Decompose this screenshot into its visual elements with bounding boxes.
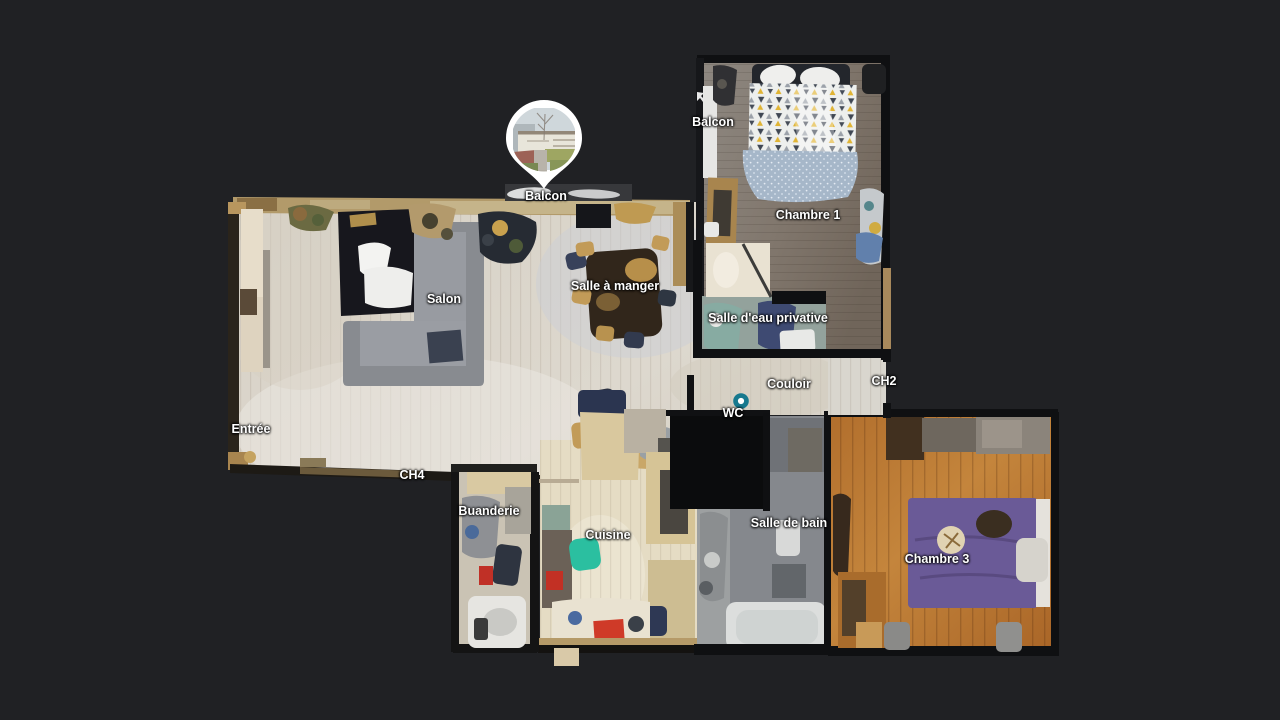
svg-text:Couloir: Couloir <box>767 377 811 391</box>
svg-text:Balcon: Balcon <box>525 189 567 203</box>
svg-text:Salle d'eau privative: Salle d'eau privative <box>708 311 828 325</box>
svg-text:CH2: CH2 <box>871 374 896 388</box>
svg-text:Salon: Salon <box>427 292 461 306</box>
svg-text:Chambre 1: Chambre 1 <box>776 208 841 222</box>
svg-text:WC: WC <box>723 406 744 420</box>
svg-text:Balcon: Balcon <box>692 115 734 129</box>
svg-text:Cuisine: Cuisine <box>585 528 630 542</box>
svg-text:Chambre 3: Chambre 3 <box>905 552 970 566</box>
svg-text:Salle de bain: Salle de bain <box>751 516 827 530</box>
svg-text:Buanderie: Buanderie <box>458 504 519 518</box>
svg-text:Entrée: Entrée <box>232 422 271 436</box>
svg-text:CH4: CH4 <box>399 468 424 482</box>
svg-text:Salle à manger: Salle à manger <box>571 279 659 293</box>
